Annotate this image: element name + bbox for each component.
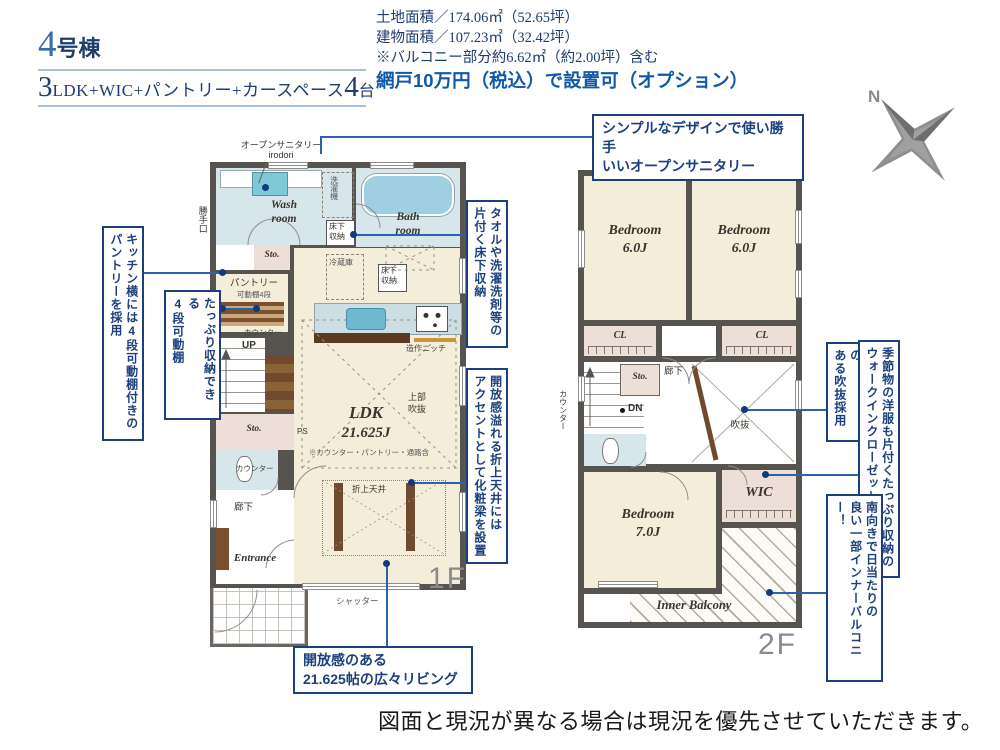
kitchen-sink xyxy=(346,308,386,330)
area-block: 土地面積／174.06㎡（52.65坪） 建物面積／107.23㎡（32.42坪… xyxy=(376,8,748,94)
leader-living xyxy=(386,563,388,646)
floor-storage-wash-label: 床下 収納 xyxy=(329,222,345,242)
building-area: 建物面積／107.23㎡（32.42坪） xyxy=(376,28,748,48)
coffered-ceiling-label: 折上天井 xyxy=(350,484,388,494)
callout-pantry: キッチン横には4段可動棚付きの パントリーを採用 xyxy=(102,226,144,441)
callout-balcony: 南向きで日当たりの 良い一部インナーバルコニー！ xyxy=(826,494,883,682)
leader-sanitary-drop xyxy=(320,136,322,154)
wash-room-label: Wash room xyxy=(244,198,324,227)
void-label: 吹抜 xyxy=(718,420,762,431)
leader-wic xyxy=(765,474,858,476)
building-number: 4 xyxy=(38,24,57,65)
callout-living: 開放感のある 21.625帖の広々リビング xyxy=(293,646,473,694)
dn-dot xyxy=(620,408,625,413)
leader-floor-storage xyxy=(353,234,466,236)
ldk-size-label: 21.625J xyxy=(318,424,414,443)
leader-dot-shelf-2 xyxy=(253,305,260,312)
leader-void xyxy=(744,409,826,411)
title-block: 4号棟 3LDK+WIC+パントリー+カースペース4台 xyxy=(38,26,366,107)
balcony-note: ※バルコニー部分約6.62㎡（約2.00坪）含む xyxy=(376,48,748,68)
leader-dot-living xyxy=(383,560,390,567)
kitchen-door-label: 勝手口 xyxy=(197,206,208,233)
hallway-label-1f: 廊下 xyxy=(234,502,253,513)
callout-floor-storage: タオルや洗濯洗剤等の 片付く床下収納 xyxy=(466,200,508,348)
ps-label: PS xyxy=(297,427,308,437)
leader-dot-ceiling xyxy=(408,479,415,486)
floor-label-1f: 1F xyxy=(428,562,467,596)
storage-2f-label: Sto. xyxy=(624,372,656,384)
layout-rooms: 3 xyxy=(38,71,53,103)
stove xyxy=(416,306,448,332)
callout-ceiling: 開放感溢れる折上天井には アクセントとして化粧梁を設置 xyxy=(466,368,508,564)
flyer-page: 4号棟 3LDK+WIC+パントリー+カースペース4台 土地面積／174.06㎡… xyxy=(0,0,1000,750)
building-suffix: 号棟 xyxy=(57,36,101,61)
closet-2-label: CL xyxy=(744,330,780,343)
floorplan-1f: 洗濯機 床下 収納 冷蔵庫 床下 収納 造作ニッチ Wash room Bath… xyxy=(210,162,466,590)
bedroom-3-label: Bedroom 7.0J xyxy=(600,506,696,541)
leader-dot-balcony xyxy=(766,589,773,596)
dn-label: DN xyxy=(628,403,642,415)
layout-text: LDK+WIC+パントリー+カースペース xyxy=(53,81,345,100)
entrance-porch xyxy=(210,588,308,647)
floorplan-2f: Bedroom 6.0J Bedroom 6.0J CL CL Sto. 廊下 … xyxy=(578,170,802,628)
leader-sanitary xyxy=(320,136,592,138)
leader-balcony xyxy=(769,592,826,594)
leader-dot-sanitary xyxy=(262,184,269,191)
inner-balcony-label: Inner Balcony xyxy=(636,598,752,614)
porch-door-arc xyxy=(213,588,299,638)
shelf4-label: 可動棚4段 xyxy=(224,290,284,299)
hallway-2f-label: 廊下 xyxy=(664,366,683,377)
layout-cars: 4 xyxy=(344,71,359,103)
title-rule-bottom xyxy=(38,105,366,107)
niche-label: 造作ニッチ xyxy=(406,344,446,354)
fridge-label: 冷蔵庫 xyxy=(329,258,353,268)
leader-dot-void xyxy=(741,406,748,413)
callout-shelf: たっぷり収納できる 4段可動棚 xyxy=(164,290,221,420)
leader-dot-pantry xyxy=(219,269,226,276)
ldk-label: LDK xyxy=(318,402,414,423)
compass-rose-icon: N xyxy=(858,78,963,188)
svg-text:N: N xyxy=(868,87,880,106)
counter-label: カウンター xyxy=(244,328,300,337)
wic-label: WIC xyxy=(736,484,782,502)
disclaimer: 図面と現況が異なる場合は現況を優先させていただきます。 xyxy=(378,704,983,736)
compass: N xyxy=(858,78,963,188)
bedroom-1-label: Bedroom 6.0J xyxy=(590,222,680,257)
floor-storage-kitchen-label: 床下 収納 xyxy=(381,266,397,287)
leader-ceiling xyxy=(411,482,466,484)
leader-dot-floor-storage xyxy=(350,231,357,238)
storage-top-label: Sto. xyxy=(256,250,288,262)
screen-option-note: 網戸10万円（税込）で設置可（オプション） xyxy=(376,68,748,94)
pantry-label: パントリー xyxy=(224,278,284,289)
callout-sanitary: シンプルなデザインで使い勝手 いいオープンサニタリー xyxy=(592,114,804,181)
counter-2f-label: カウンター xyxy=(558,390,568,430)
layout-unit: 台 xyxy=(359,83,375,100)
land-area: 土地面積／174.06㎡（52.65坪） xyxy=(376,8,748,28)
storage-mid-label: Sto. xyxy=(234,424,274,436)
up-label: UP xyxy=(242,340,256,352)
bedroom-2-label: Bedroom 6.0J xyxy=(698,222,790,257)
laundry-label: 洗濯機 xyxy=(329,176,339,200)
leader-dot-wic xyxy=(762,471,769,478)
upper-void-label: 上部 吹抜 xyxy=(408,392,426,415)
leader-pantry xyxy=(140,272,224,274)
entrance-label: Entrance xyxy=(224,552,286,566)
counter2-label: カウンター xyxy=(236,464,292,473)
closet-1-label: CL xyxy=(602,330,638,343)
ldk-note-label: ※カウンター・パントリー・通路含 xyxy=(304,448,434,457)
floor-label-2f: 2F xyxy=(758,628,797,662)
shutter-label: シャッター xyxy=(336,596,379,606)
